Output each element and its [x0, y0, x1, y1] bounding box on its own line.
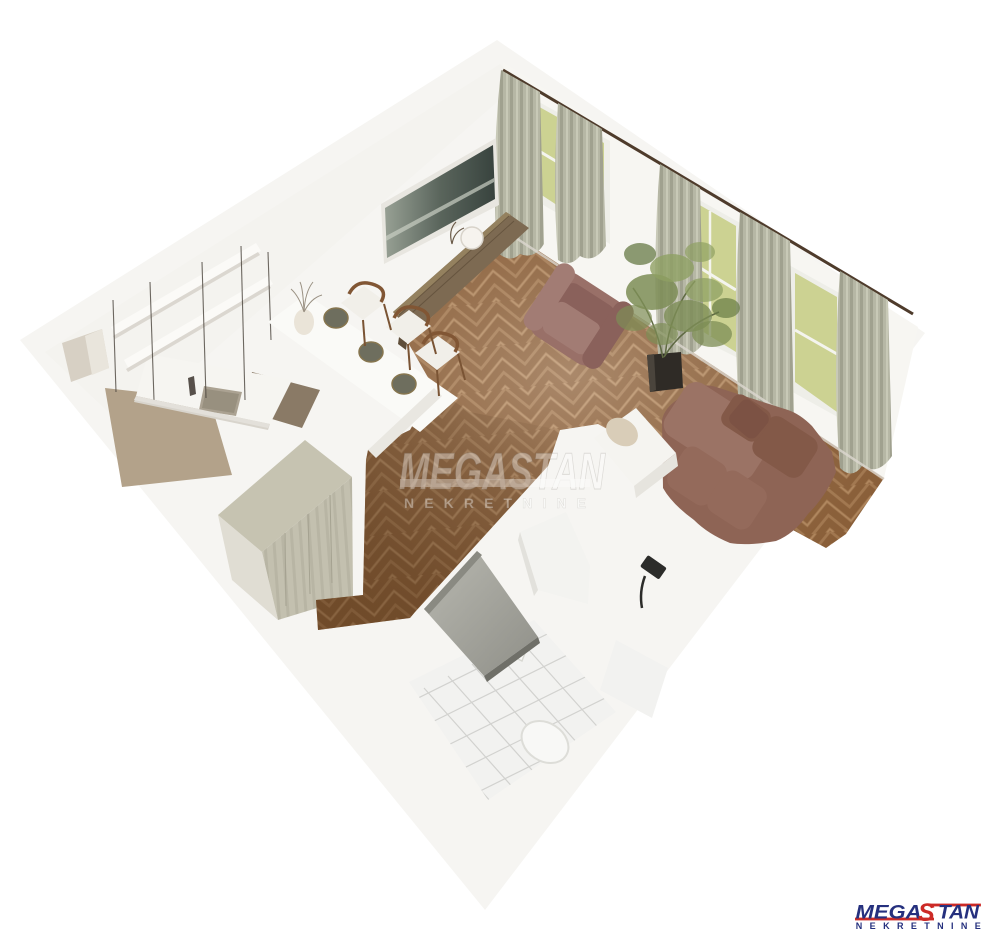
svg-text:MEGASTAN: MEGASTAN: [399, 443, 606, 501]
